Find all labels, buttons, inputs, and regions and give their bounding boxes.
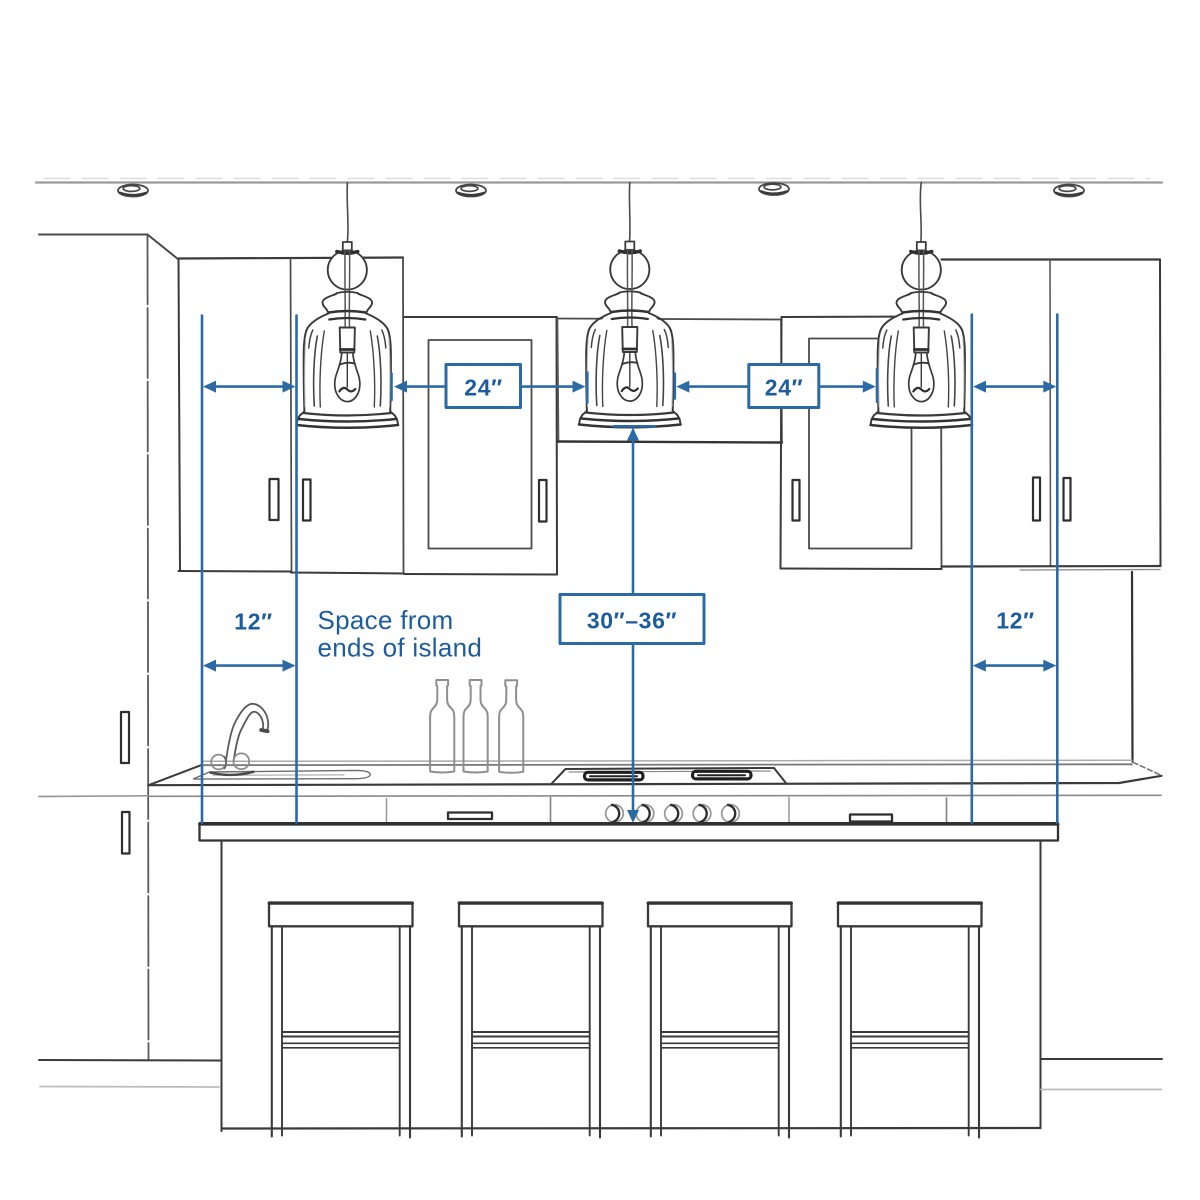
svg-text:ends of island: ends of island (318, 633, 483, 663)
svg-text:12″: 12″ (234, 609, 272, 635)
svg-text:Space from: Space from (318, 605, 454, 635)
svg-text:12″: 12″ (996, 608, 1034, 634)
svg-text:24″: 24″ (464, 375, 502, 401)
svg-text:30″–36″: 30″–36″ (587, 608, 677, 634)
svg-text:24″: 24″ (765, 375, 803, 401)
